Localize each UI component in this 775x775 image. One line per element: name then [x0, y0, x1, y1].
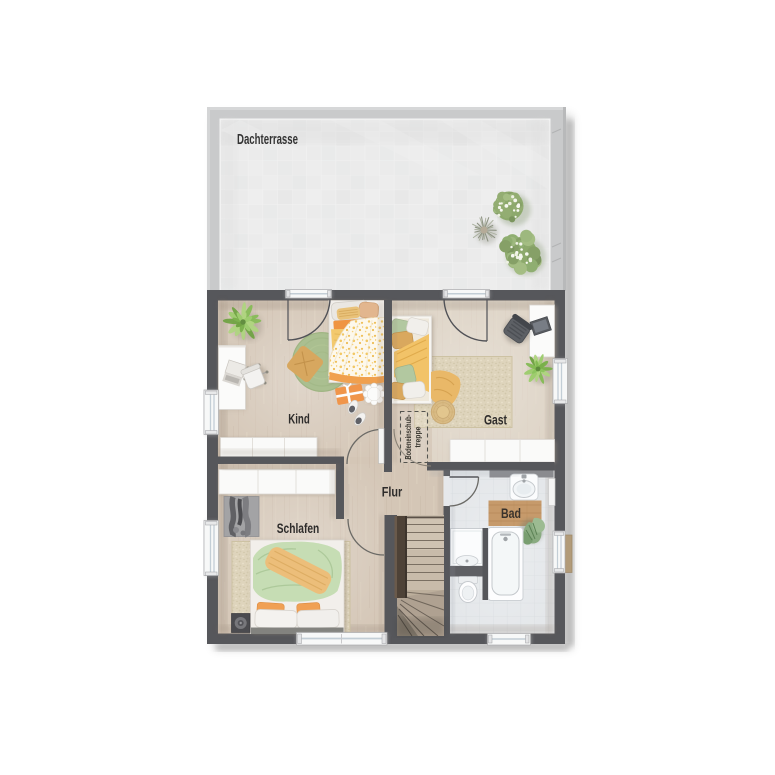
svg-text:Bodeneinschub-: Bodeneinschub-	[403, 414, 413, 459]
svg-text:Bad: Bad	[501, 505, 521, 521]
svg-text:Gast: Gast	[484, 412, 507, 428]
svg-text:Kind: Kind	[288, 411, 310, 427]
svg-text:Schlafen: Schlafen	[277, 520, 320, 536]
svg-text:Dachterrasse: Dachterrasse	[237, 132, 298, 148]
svg-text:treppe: treppe	[413, 426, 423, 447]
svg-text:Flur: Flur	[382, 484, 403, 500]
